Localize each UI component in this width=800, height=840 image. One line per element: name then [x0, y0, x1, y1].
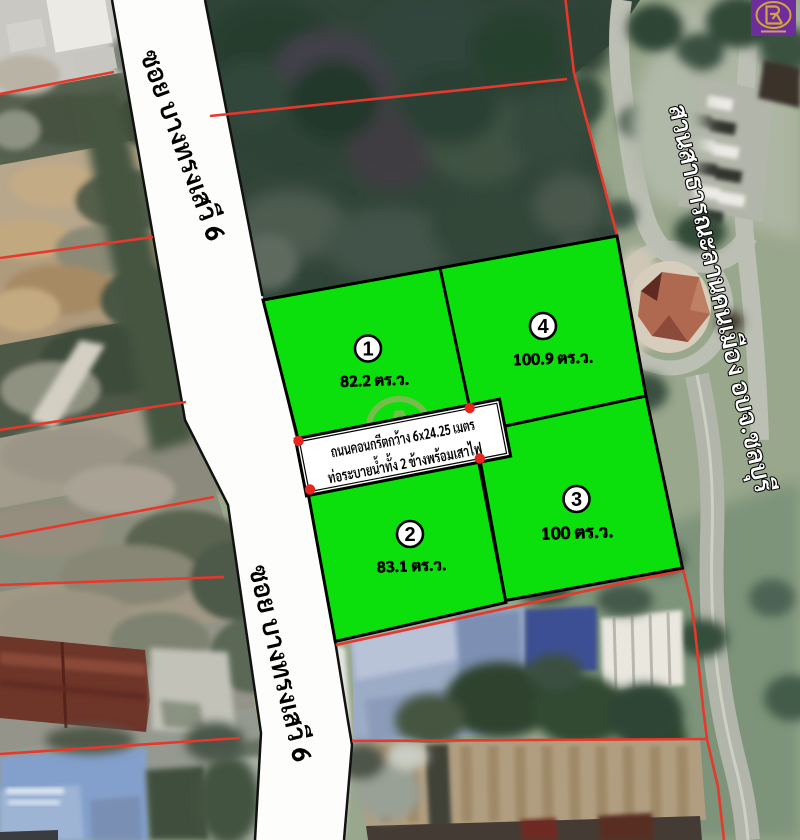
svg-text:1: 1 — [362, 339, 373, 361]
svg-text:4: 4 — [537, 316, 549, 338]
svg-text:3: 3 — [571, 489, 582, 511]
svg-text:2: 2 — [404, 524, 415, 546]
